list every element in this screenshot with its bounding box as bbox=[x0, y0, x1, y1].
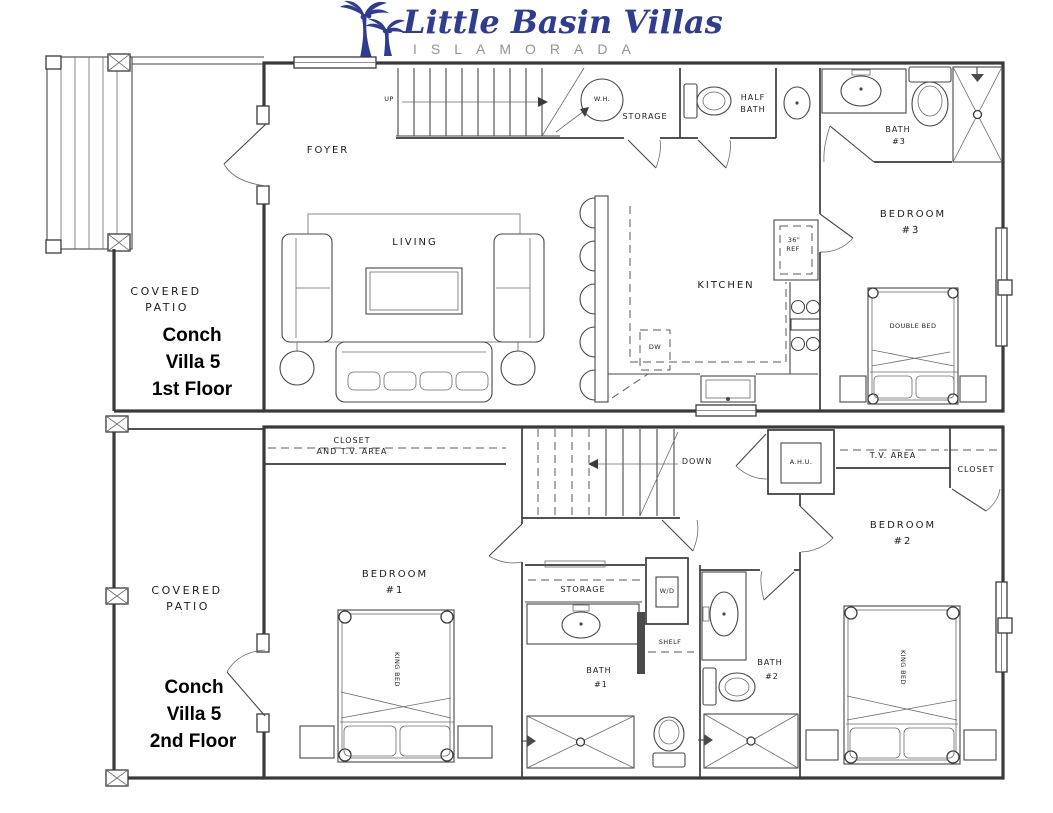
kitchen-fixtures bbox=[580, 196, 820, 402]
toilet-icon bbox=[909, 67, 951, 126]
label-bedroom3: BEDROOM bbox=[880, 210, 946, 220]
label-bedroom2-num: #2 bbox=[894, 537, 913, 547]
floorplan-page: Little Basin Villas ISLAMORADA bbox=[0, 0, 1053, 813]
label-closet2: CLOSET bbox=[957, 466, 994, 474]
label-king-bed-1: KING BED bbox=[394, 652, 401, 687]
side-table-icon bbox=[501, 351, 535, 385]
bath2-door bbox=[761, 571, 794, 600]
bedroom2-door bbox=[800, 506, 833, 552]
nightstand-icon bbox=[840, 376, 866, 402]
label-shelf: SHELF bbox=[659, 639, 681, 646]
label-floor-f1: 1st Floor bbox=[152, 380, 232, 399]
label-patio-f1: PATIO bbox=[145, 302, 189, 313]
sofa-icon bbox=[336, 342, 492, 402]
window-icon bbox=[696, 405, 756, 416]
label-up: UP bbox=[384, 96, 393, 103]
column-icon bbox=[106, 588, 128, 604]
label-washer-dryer: W/D bbox=[660, 588, 675, 595]
cooktop-icon bbox=[791, 301, 820, 351]
label-villa-number-f1: Villa 5 bbox=[166, 353, 221, 372]
nightstand-icon bbox=[960, 376, 986, 402]
label-bath2-2: #2 bbox=[765, 673, 779, 681]
toilet-icon bbox=[703, 668, 755, 705]
second-floor-plan bbox=[106, 416, 1012, 786]
closet-rod bbox=[545, 561, 605, 567]
ahu-closet bbox=[736, 430, 834, 494]
label-bath1-2: #1 bbox=[594, 681, 608, 689]
nightstand-icon bbox=[806, 730, 838, 760]
label-bedroom1-num: #1 bbox=[386, 586, 405, 596]
label-covered-f2: COVERED bbox=[151, 585, 222, 596]
label-storage-f1: STORAGE bbox=[622, 113, 667, 121]
column-icon bbox=[106, 416, 128, 432]
label-king-bed-2: KING BED bbox=[900, 650, 907, 685]
label-covered-f1: COVERED bbox=[130, 286, 201, 297]
pedestal-sink-icon bbox=[784, 87, 810, 119]
label-kitchen: KITCHEN bbox=[697, 281, 754, 291]
window-icon bbox=[294, 57, 376, 68]
shower-icon bbox=[698, 714, 798, 768]
label-living: LIVING bbox=[392, 238, 438, 248]
window-icon bbox=[996, 582, 1012, 672]
label-half-bath-2: BATH bbox=[740, 106, 765, 114]
window-icon bbox=[996, 228, 1012, 346]
label-ahu: A.H.U. bbox=[790, 459, 812, 466]
bar-stools-icon bbox=[580, 198, 595, 400]
nightstand-icon bbox=[300, 726, 334, 758]
nightstand-icon bbox=[964, 730, 996, 760]
side-table-icon bbox=[280, 351, 314, 385]
label-bath1-1: BATH bbox=[586, 667, 611, 675]
toilet-icon bbox=[684, 84, 731, 118]
label-villa-name-f2: Conch bbox=[164, 678, 223, 697]
kitchen-sink-icon bbox=[701, 376, 755, 402]
floorplan-canvas bbox=[0, 0, 1053, 813]
vanity-sink-icon bbox=[702, 572, 746, 660]
stairs-down bbox=[522, 427, 680, 518]
label-bedroom3-num: #3 bbox=[902, 226, 921, 236]
label-storage-f2: STORAGE bbox=[560, 586, 605, 594]
entry-door bbox=[224, 106, 269, 204]
column-icon bbox=[106, 770, 128, 786]
vanity-sink-icon bbox=[527, 604, 639, 644]
patio-door bbox=[227, 634, 269, 732]
label-bath3-1: BATH bbox=[885, 126, 910, 134]
label-ref: REF bbox=[786, 246, 800, 253]
label-patio-f2: PATIO bbox=[166, 601, 210, 612]
label-floor-f2: 2nd Floor bbox=[150, 732, 237, 751]
storage-door bbox=[628, 140, 661, 168]
shower-icon bbox=[953, 67, 1002, 162]
shower-icon bbox=[521, 716, 634, 768]
label-bedroom2: BEDROOM bbox=[870, 521, 936, 531]
king-bed-icon bbox=[844, 606, 960, 764]
label-down: DOWN bbox=[682, 458, 712, 466]
label-closet-tv-2: AND T.V. AREA bbox=[317, 448, 388, 456]
label-dishwasher: DW bbox=[649, 344, 661, 351]
label-villa-name-f1: Conch bbox=[162, 326, 221, 345]
vanity-sink-icon bbox=[822, 69, 906, 113]
halfbath-door bbox=[698, 140, 731, 168]
divider-wall bbox=[637, 612, 645, 674]
label-ref-size: 36" bbox=[788, 237, 800, 244]
label-bath2-1: BATH bbox=[757, 659, 782, 667]
label-tv-area: T.V. AREA bbox=[870, 452, 917, 460]
column-icon bbox=[108, 234, 130, 251]
label-villa-number-f2: Villa 5 bbox=[167, 705, 222, 724]
label-foyer: FOYER bbox=[307, 146, 349, 156]
closet2-door bbox=[952, 489, 1000, 511]
label-half-bath-1: HALF bbox=[741, 94, 766, 102]
label-closet-tv-1: CLOSET bbox=[333, 437, 370, 445]
tv-console bbox=[366, 268, 462, 314]
label-bedroom1: BEDROOM bbox=[362, 570, 428, 580]
bedroom1-door bbox=[489, 524, 522, 563]
column-icon bbox=[108, 54, 130, 71]
hall-door bbox=[662, 520, 698, 551]
loveseat-icon bbox=[282, 234, 332, 342]
loveseat-icon bbox=[494, 234, 544, 342]
bedroom3-door bbox=[820, 214, 853, 252]
label-bath3-2: #3 bbox=[892, 138, 906, 146]
bar-counter bbox=[595, 196, 608, 402]
nightstand-icon bbox=[458, 726, 492, 758]
label-water-heater: W.H. bbox=[594, 96, 610, 103]
label-double-bed: DOUBLE BED bbox=[890, 323, 937, 330]
bath3-door bbox=[824, 126, 874, 162]
toilet-icon bbox=[653, 717, 685, 767]
deck bbox=[46, 54, 264, 253]
stairs-up bbox=[396, 68, 589, 136]
double-bed-icon bbox=[868, 288, 958, 404]
